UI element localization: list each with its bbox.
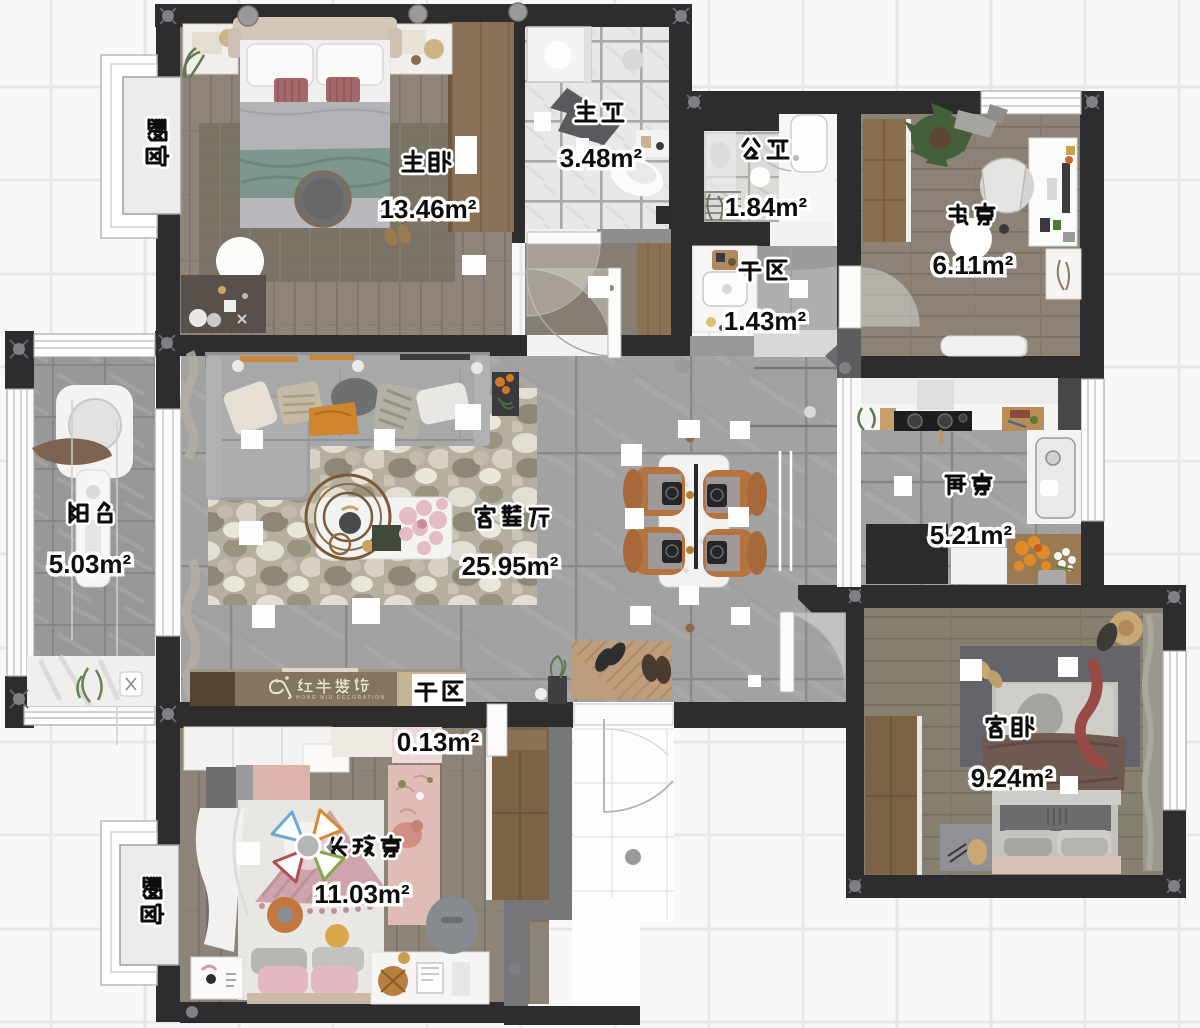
svg-text:HONG NIU DECORATION: HONG NIU DECORATION (296, 695, 386, 701)
svg-text:11.03m²: 11.03m² (314, 879, 410, 909)
svg-text:25.95m²: 25.95m² (462, 551, 559, 581)
svg-text:0.13m²: 0.13m² (397, 727, 480, 757)
svg-text:13.46m²: 13.46m² (380, 194, 477, 224)
svg-text:1.84m²: 1.84m² (725, 192, 808, 222)
svg-text:5.21m²: 5.21m² (930, 520, 1013, 550)
svg-text:3.48m²: 3.48m² (560, 143, 643, 173)
svg-text:6.11m²: 6.11m² (933, 250, 1014, 280)
svg-text:1.43m²: 1.43m² (724, 306, 807, 336)
svg-text:5.03m²: 5.03m² (49, 549, 132, 579)
svg-text:9.24m²: 9.24m² (971, 763, 1054, 793)
